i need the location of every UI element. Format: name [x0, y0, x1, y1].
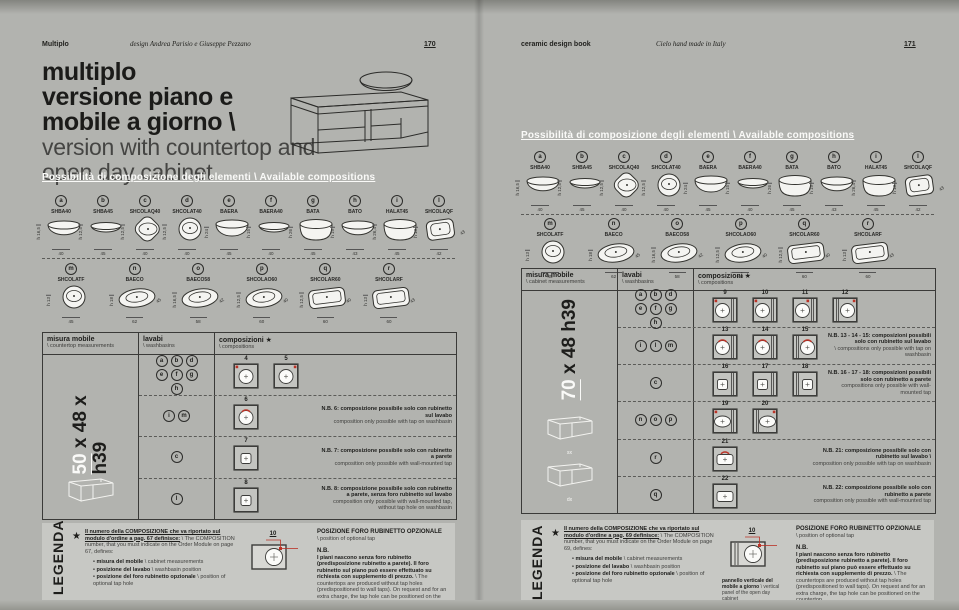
bullet-en: \ washbasin position: [631, 564, 681, 570]
height-dimension: h 13: [413, 227, 418, 238]
washbasin-code: BAERA: [220, 209, 238, 215]
legenda-bullet: posizione del foro rubinetto opzionale \…: [93, 574, 237, 587]
composition-tiles: 8: [233, 480, 259, 518]
washbasin-letter: n: [635, 414, 647, 426]
cabinet-icons: [65, 474, 117, 509]
basin-drawing: [242, 284, 286, 316]
washbasin-figure-wrap: h 12,540: [715, 239, 767, 271]
washbasin-letter: m: [544, 218, 556, 230]
washbasin-letter: p: [665, 414, 677, 426]
washbasin-figure: [657, 239, 701, 266]
composition-tile: [273, 363, 299, 394]
cabinet-icon-wrap: [544, 412, 596, 447]
composition-diagram: [752, 334, 778, 360]
table-header-row: misura mobile\ cabinet measurementslavab…: [522, 269, 935, 291]
nb-text: I piani nascono senza foro rubinetto (pr…: [796, 552, 926, 604]
composition-number: 18: [802, 364, 809, 370]
letters-line: efg: [635, 303, 677, 315]
washbasin-item: fBAERA40h 1540: [250, 195, 292, 256]
height-dimension: h 12,5: [120, 225, 125, 240]
washbasin-letter: i: [870, 151, 882, 163]
washbasin-code: BATO: [348, 209, 362, 215]
composition-tile: [233, 445, 259, 476]
height-dimension: h 12,5: [162, 225, 167, 240]
running-head-credit: Cielo hand made in Italy: [656, 40, 726, 48]
compositions-cell: 45: [215, 355, 456, 395]
height-dimension: h 19: [330, 227, 335, 238]
running-head-credit: design Andrea Parisio e Giuseppe Pezzano: [130, 40, 251, 48]
composition: 6: [233, 397, 259, 435]
tap-position-title: POSIZIONE FORO RUBINETTO OPZIONALE: [317, 529, 447, 536]
washbasin-letters-cell: im: [139, 396, 215, 436]
washbasin-letters-cell: q: [618, 477, 694, 513]
letters-line: abd: [635, 289, 677, 301]
composition: 12: [832, 290, 858, 328]
washbasin-figure: [52, 284, 96, 311]
cabinet-icon-wrap: [544, 459, 596, 494]
washbasin-item: pSHCOLAO60h 12,54060: [231, 263, 293, 324]
washbasin-figure-wrap: h 1845: [588, 239, 640, 271]
legenda-right-column: POSIZIONE FORO RUBINETTO OPZIONALE\ posi…: [788, 526, 926, 600]
basin-drawing: [594, 239, 638, 271]
washbasin-item: cSHCOLAQ40h 12,540: [124, 195, 166, 256]
washbasin-figure: [242, 284, 286, 311]
header-label-en: \ countertop measurements: [47, 343, 134, 350]
washbasin-figure: [531, 239, 575, 266]
composition: 13: [712, 327, 738, 365]
table-row: c7N.B. 7: composizione possibile solo co…: [139, 437, 456, 478]
cabinet-size-label: 70 x 48 h39: [560, 299, 580, 400]
composition-diagram: [712, 334, 738, 360]
width-dimension: 45: [783, 205, 800, 212]
height-dimension: h 12,5: [641, 181, 646, 196]
legenda: LEGENDA★Il numero della COMPOSIZIONE che…: [42, 523, 455, 601]
composition-number: 9: [723, 290, 726, 296]
header-lavabi: lavabi\ washbasins: [139, 333, 215, 354]
legenda-diagram: 10: [237, 529, 309, 595]
tap-position-sub: \ position of optional tap: [317, 536, 447, 543]
washbasin-letter: l: [433, 195, 445, 207]
composition-diagram: [273, 363, 299, 389]
composition-diagram: [712, 297, 738, 323]
washbasin-code: SHBA45: [93, 209, 113, 215]
bullet-en: \ cabinet measurements: [145, 559, 204, 565]
cabinet-icon-label: dx: [567, 497, 572, 503]
tap-position-title: POSIZIONE FORO RUBINETTO OPZIONALE: [796, 526, 926, 533]
composition: 16: [712, 364, 738, 402]
width-dimension: 42: [430, 249, 447, 256]
width-dimension: 45: [573, 205, 590, 212]
height-dimension: h 13: [363, 295, 368, 306]
compositions-cell: 9101112: [694, 291, 935, 327]
header-label-en: \ compositions: [219, 344, 452, 351]
washbasin-letter: p: [735, 218, 747, 230]
depth-dimension: 40: [824, 252, 831, 259]
height-dimension: h 12,5: [78, 225, 83, 240]
washbasin-code: SHCOLAQ40: [130, 209, 161, 215]
width-dimension: 45: [388, 249, 405, 256]
composition: 19: [712, 401, 738, 439]
size-highlight: 50: [70, 453, 91, 474]
table-row: im6N.B. 6: composizione possibile solo c…: [139, 396, 456, 437]
composition-tile: [712, 483, 738, 514]
washbasin-code: SHCOLAQF: [904, 165, 932, 171]
composition-note: N.B. 8: composizione possibile solo con …: [316, 486, 452, 512]
height-dimension: h 13: [46, 295, 51, 306]
width-dimension: 45: [304, 249, 321, 256]
note-en: composition only possible with tap on wa…: [801, 461, 931, 468]
header-label-en: \ cabinet measurements: [526, 279, 613, 286]
washbasin-item: aSHBA40h 16,540: [40, 195, 82, 256]
washbasin-letter: l: [912, 151, 924, 163]
washbasin-item: hBATOh 1943: [334, 195, 376, 256]
washbasin-figure: [594, 239, 638, 266]
height-dimension: h 12,5: [715, 248, 720, 263]
composition-tile: [832, 297, 858, 328]
washbasin-item: rSHCOLARFh 134360: [358, 263, 420, 324]
washbasin-letter: q: [650, 489, 662, 501]
height-dimension: h 18: [588, 250, 593, 261]
composition-tiles: 1920: [712, 401, 778, 439]
note-it: N.B. 7: composizione possibile solo con …: [322, 448, 452, 461]
note-it: N.B. 8: composizione possibile solo con …: [322, 486, 452, 499]
composition-diagram: [712, 408, 738, 434]
washbasin-letter: m: [65, 263, 77, 275]
composition-tile: [712, 446, 738, 477]
washbasin-item: dSHCOLAT40h 12,540: [166, 195, 208, 256]
washbasin-figure-wrap: h 16,542: [172, 284, 224, 316]
cabinet-icon-wrap: [65, 474, 117, 509]
compositions-cell: 7N.B. 7: composizione possibile solo con…: [215, 437, 456, 477]
bullet-it: posizione del lavabo: [575, 564, 629, 570]
washbasin-code: SHCOLAT40: [651, 165, 680, 171]
width-dimension: 45: [867, 205, 884, 212]
composition: 18: [792, 364, 818, 402]
letters-line: c: [171, 451, 183, 463]
width-dimension: 40: [531, 205, 548, 212]
washbasin-item: dSHCOLAT40h 12,540: [645, 151, 687, 212]
composition-number: 7: [244, 438, 247, 444]
composition-tile: [792, 334, 818, 365]
height-dimension: h 26: [288, 227, 293, 238]
width-dimension: 60: [253, 317, 270, 324]
height-dimension: h 16,5: [651, 248, 656, 263]
washbasin-letter: o: [671, 218, 683, 230]
composition: 22: [712, 476, 738, 514]
composition-tile: [752, 408, 778, 439]
washbasin-figure: [369, 284, 413, 311]
composition-note: N.B. 13 - 14 - 15: composizioni possibil…: [818, 333, 931, 359]
washbasin-letter: r: [862, 218, 874, 230]
washbasin-letter: f: [265, 195, 277, 207]
washbasin-figure: [419, 216, 463, 243]
composition-diagram: [792, 297, 818, 323]
compositions-cell: 8N.B. 8: composizione possibile solo con…: [215, 479, 456, 519]
washbasin-item: eBAERAh 2445: [208, 195, 250, 256]
depth-dimension: 42: [218, 297, 225, 304]
composition-tile: [792, 297, 818, 328]
composition-diagram: [712, 446, 738, 472]
composition-tile: [233, 404, 259, 435]
depth-dimension: 43: [409, 297, 416, 304]
note-en: composition only possible with tap on wa…: [322, 419, 452, 426]
diagram-drawing: [246, 537, 300, 578]
legenda-bullet: misura del mobile \ cabinet measurements: [93, 559, 237, 566]
diagram-drawing: [725, 534, 779, 575]
composition-diagram: [792, 334, 818, 360]
composition-diagram: [712, 371, 738, 397]
washbasin-letters-cell: c: [618, 365, 694, 401]
composition: 21: [712, 439, 738, 477]
composition-diagram: [233, 404, 259, 430]
washbasin-figure-wrap: h 1343: [363, 284, 415, 316]
washbasin-letter: e: [635, 303, 647, 315]
legenda-right-column: POSIZIONE FORO RUBINETTO OPZIONALE\ posi…: [309, 529, 447, 595]
washbasin-code: SHCOLAR60: [789, 232, 819, 238]
width-dimension: 40: [741, 205, 758, 212]
composition-tiles: 7: [233, 438, 259, 476]
composition-tile: [233, 363, 259, 394]
letters-line: l: [171, 493, 183, 505]
note-it: N.B. 21: composizione possibile solo con…: [801, 448, 931, 461]
compositions-cell: 131415N.B. 13 - 14 - 15: composizioni po…: [694, 328, 935, 364]
width-dimension: 43: [825, 205, 842, 212]
letters-line: r: [650, 452, 662, 464]
washbasin-letter: b: [650, 289, 662, 301]
composition-diagram: [712, 483, 738, 509]
washbasin-letter: i: [163, 410, 175, 422]
section-heading: Possibilità di composizione degli elemen…: [42, 172, 375, 183]
title-line: versione piano e: [42, 85, 315, 110]
washbasin-code: SHCOLAO60: [726, 232, 757, 238]
width-dimension: 45: [220, 249, 237, 256]
washbasin-letter: h: [349, 195, 361, 207]
letters-line: ilm: [635, 340, 677, 352]
composition-diagram: [752, 408, 778, 434]
composition-number: 21: [722, 439, 729, 445]
basin-drawing: [52, 284, 96, 316]
composition-tiles: 45: [233, 356, 299, 394]
washbasin-item: aSHBA40h 16,540: [519, 151, 561, 212]
basin-drawing: [721, 239, 765, 271]
composition-diagram: [233, 487, 259, 513]
washbasin-letter: n: [608, 218, 620, 230]
composition-diagram: [752, 371, 778, 397]
composition-tile: [752, 371, 778, 402]
table-row: c161718N.B. 16 - 17 - 18: composizioni p…: [618, 365, 935, 402]
washbasin-code: SHBA40: [51, 209, 71, 215]
size-highlight: 70: [559, 379, 580, 400]
width-dimension: 58: [190, 317, 207, 324]
compositions-cell: 1920: [694, 402, 935, 438]
legenda: LEGENDA★Il numero della COMPOSIZIONE che…: [521, 520, 934, 606]
washbasin-letters-cell: l: [139, 479, 215, 519]
composition-tile: [792, 371, 818, 402]
cabinet-icon: [544, 459, 596, 489]
basin-drawing: [531, 239, 575, 271]
washbasin-code: HALAT45: [865, 165, 887, 171]
height-dimension: h 16,5: [36, 225, 41, 240]
note-en: compositions only possible with wall-mou…: [824, 383, 931, 396]
letters-line: abd: [156, 355, 198, 367]
washbasin-code: SHCOLAQF: [425, 209, 453, 215]
washbasin-figure-wrap: h 12,540: [236, 284, 288, 316]
washbasin-letter: o: [650, 414, 662, 426]
washbasin-letter: g: [665, 303, 677, 315]
composition-tile: [233, 487, 259, 518]
composition-tiles: 131415: [712, 327, 818, 365]
height-dimension: h 19: [809, 183, 814, 194]
washbasin-letter: r: [383, 263, 395, 275]
composition-number: 11: [802, 290, 808, 296]
composition: 4: [233, 356, 259, 394]
washbasin-letter: p: [256, 263, 268, 275]
page-bottom-shadow: [0, 600, 959, 610]
composition-number: 13: [722, 327, 729, 333]
compositions-cell: 6N.B. 6: composizione possibile solo con…: [215, 396, 456, 436]
legenda-bullet: posizione del foro rubinetto opzionale \…: [572, 571, 716, 584]
composition-number: 14: [762, 327, 769, 333]
letters-line: q: [650, 489, 662, 501]
height-dimension: h 24: [204, 227, 209, 238]
washbasin-item: iHALAT45h 26,445: [855, 151, 897, 212]
composition-note: N.B. 7: composizione possibile solo con …: [316, 448, 452, 468]
depth-dimension: 43: [459, 229, 466, 236]
washbasin-letter: l: [650, 340, 662, 352]
composition: 17: [752, 364, 778, 402]
washbasin-letter: e: [702, 151, 714, 163]
height-dimension: h 12,5: [599, 181, 604, 196]
washbasin-letter: e: [156, 369, 168, 381]
basin-drawing: [178, 284, 222, 316]
composition-tile: [752, 297, 778, 328]
washbasin-code: SHCOLAO60: [247, 277, 278, 283]
composition-number: 12: [842, 290, 849, 296]
washbasin-item: nBAECOh 184562: [104, 263, 166, 324]
washbasin-code: SHBA45: [572, 165, 592, 171]
height-dimension: h 26: [767, 183, 772, 194]
washbasin-letter: g: [186, 369, 198, 381]
washbasin-item: eBAERAh 2445: [687, 151, 729, 212]
tap-position-diagram: [246, 537, 300, 573]
washbasin-code: SHCOLAT40: [172, 209, 201, 215]
legenda-bullets: misura del mobile \ cabinet measurements…: [564, 556, 716, 584]
washbasin-letter: d: [181, 195, 193, 207]
cabinet-icon: [544, 412, 596, 442]
composition-number: 16: [722, 364, 729, 370]
composition-number: 6: [244, 397, 247, 403]
table-body: 50 x 48 x h39 abdefgh45im6N.B. 6: compos…: [43, 355, 456, 520]
page-number: 170: [424, 41, 436, 48]
header-label-en: \ washbasins: [622, 279, 689, 286]
note-en: composition only possible with wall-moun…: [322, 461, 452, 468]
washbasin-item: qSHCOLAR60h 12,54060: [294, 263, 356, 324]
washbasin-item: hBATOh 1943: [813, 151, 855, 212]
washbasin-figure: [178, 284, 222, 311]
header-composizioni: composizioni ★\ compositions: [694, 269, 935, 290]
composition-note: N.B. 16 - 17 - 18: composizioni possibil…: [818, 370, 931, 396]
washbasin-figure-wrap: h 12,540: [299, 284, 351, 316]
composition-tile: [712, 408, 738, 439]
header-composizioni: composizioni ★\ compositions: [215, 333, 456, 354]
width-dimension: 45: [94, 249, 111, 256]
legenda-rotated-label: LEGENDA: [50, 529, 66, 595]
composition-diagram: [832, 297, 858, 323]
width-dimension: 40: [262, 249, 279, 256]
header-label-it: misura mobile: [526, 272, 613, 279]
bullet-it: misura del mobile: [96, 559, 143, 565]
washbasin-letter: o: [192, 263, 204, 275]
washbasin-figure-wrap: h 13: [46, 284, 96, 316]
washbasin-figure-wrap: h 1845: [109, 284, 161, 316]
header-label-it: composizioni ★: [219, 336, 452, 344]
table-rows: abdefgh45im6N.B. 6: composizione possibi…: [139, 355, 456, 520]
page-left: Multiplo design Andrea Parisio e Giusepp…: [0, 0, 479, 610]
washbasin-letter: a: [635, 289, 647, 301]
washbasin-letter: i: [391, 195, 403, 207]
header-label-en: \ washbasins: [143, 343, 210, 350]
washbasin-row-1: aSHBA40h 16,540bSHBA45h 12,545cSHCOLAQ40…: [40, 195, 456, 256]
size-cell: 50 x 48 x h39: [43, 355, 139, 520]
table-header-row: misura mobile\ countertop measurementsla…: [43, 333, 456, 355]
washbasin-figure-wrap: h 1343: [842, 239, 894, 271]
washbasin-letter: m: [665, 340, 677, 352]
note-it: N.B. 6: composizione possibile solo con …: [322, 406, 452, 419]
composition-number: 20: [762, 401, 769, 407]
composition-note: N.B. 21: composizione possibile solo con…: [795, 448, 931, 468]
note-it: N.B. 22: composizione possibile solo con…: [801, 485, 931, 498]
book-spread: Multiplo design Andrea Parisio e Giusepp…: [0, 0, 959, 610]
legenda-intro: Il numero della COMPOSIZIONE che va ripo…: [85, 529, 237, 595]
header-label-it: misura mobile: [47, 336, 134, 343]
legenda-intro: Il numero della COMPOSIZIONE che va ripo…: [564, 526, 716, 600]
width-dimension: 62: [126, 317, 143, 324]
width-dimension: 60: [380, 317, 397, 324]
section-heading: Possibilità di composizione degli elemen…: [521, 130, 854, 141]
height-dimension: h 15: [725, 183, 730, 194]
height-dimension: h 12,5: [557, 181, 562, 196]
cabinet-icons: sx dx: [544, 412, 596, 503]
washbasin-letters-cell: abdefgh: [618, 291, 694, 327]
composition-table: misura mobile\ countertop measurementsla…: [42, 332, 457, 520]
nb-text: I piani nascono senza foro rubinetto (pr…: [317, 555, 447, 607]
washbasin-item: cSHCOLAQ40h 12,540: [603, 151, 645, 212]
height-dimension: h 13: [892, 183, 897, 194]
depth-dimension: 43: [888, 252, 895, 259]
basin-drawing: [657, 239, 701, 271]
table-row: l8N.B. 8: composizione possibile solo co…: [139, 479, 456, 519]
composition-diagram: [233, 445, 259, 471]
washbasin-row-2: mSHCOLATFh 1345nBAECOh 184562oBAECO58h 1…: [40, 263, 420, 324]
washbasin-letters-cell: c: [139, 437, 215, 477]
washbasin-letter: b: [171, 355, 183, 367]
legenda-rotated-label: LEGENDA: [529, 526, 545, 600]
washbasin-code: BAECO: [126, 277, 144, 283]
basin-drawing: [419, 216, 463, 248]
composition-number: 15: [802, 327, 809, 333]
table-row: r21N.B. 21: composizione possibile solo …: [618, 440, 935, 477]
composition-note: N.B. 22: composizione possibile solo con…: [795, 485, 931, 505]
washbasin-code: BAERA40: [738, 165, 761, 171]
cabinet-icon-label: sx: [567, 450, 572, 456]
composition-tiles: 21: [712, 439, 738, 477]
washbasin-item: mSHCOLATFh 1345: [40, 263, 102, 324]
height-dimension: h 13: [842, 250, 847, 261]
washbasin-item: gBATAh 2645: [292, 195, 334, 256]
basin-drawing: [369, 284, 413, 316]
table-row: abdefgh45: [139, 355, 456, 396]
bullet-it: posizione del foro rubinetto opzionale: [96, 574, 195, 580]
